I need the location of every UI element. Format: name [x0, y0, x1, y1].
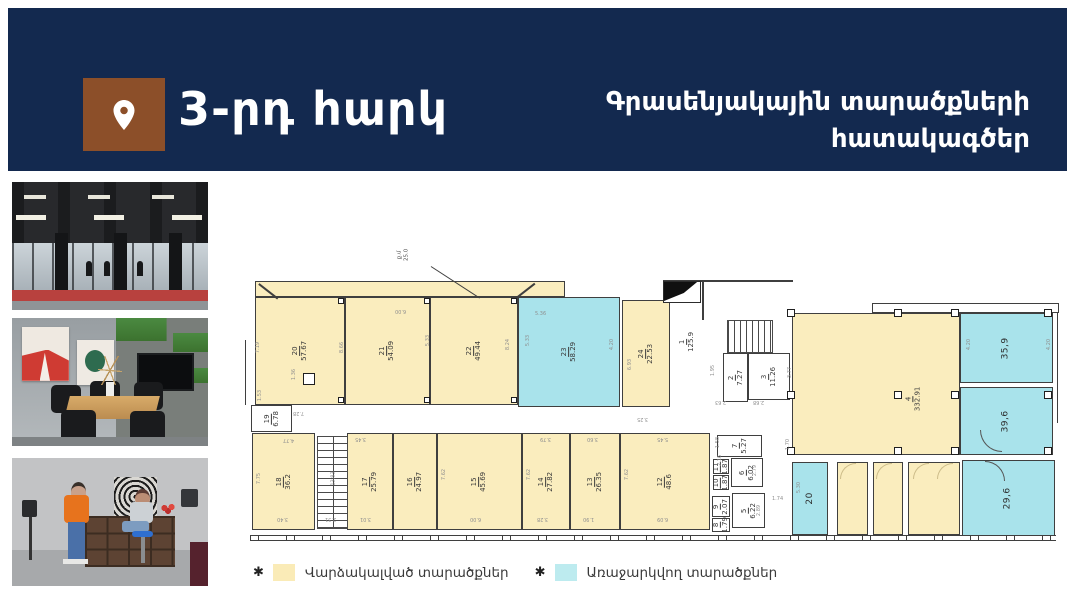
column-mark	[424, 397, 430, 403]
room-21: 2154.09	[345, 297, 430, 405]
shaft-wedge	[663, 281, 701, 303]
dimension-label: 1.90	[583, 516, 594, 521]
hall-column	[169, 233, 182, 292]
dimension-label: 4.20	[967, 339, 972, 350]
hall-column	[114, 233, 127, 292]
room-6: 66.02	[731, 458, 763, 487]
wall	[702, 280, 704, 320]
vase-branches	[98, 356, 122, 384]
room-3: 311.26	[748, 353, 790, 400]
room-29,6: 29,6	[962, 460, 1055, 537]
room-8: 81.79	[712, 518, 730, 532]
leased-swatch	[273, 564, 295, 581]
callout-unit: ք.մ	[396, 249, 403, 261]
standing-person	[64, 495, 89, 523]
dimension-label: 6.09	[657, 516, 668, 521]
legend: ✱ Վարձակալված տարածքներ ✱ Առաջարկվող տար…	[253, 564, 803, 581]
dimension-label: 3.45	[355, 436, 366, 441]
dimension-label: 13.83	[332, 471, 337, 485]
column-mark	[338, 397, 344, 403]
column-mark	[787, 309, 795, 317]
dimension-label: 7.28	[293, 410, 304, 415]
dimension-label: 3.01	[360, 516, 371, 521]
wall	[1057, 303, 1058, 423]
room-24: 2422.53	[622, 300, 670, 407]
callout-value: 25.0	[403, 249, 410, 261]
hall-lights	[24, 195, 197, 199]
legend-item-leased: ✱ Վարձակալված տարածքներ	[253, 564, 509, 581]
standing-person-legs	[68, 522, 86, 562]
room-13: 1326.35	[570, 433, 620, 530]
floorplan-canvas: 2057.672154.092249.442358.292422.531125.…	[245, 250, 1061, 550]
offered-swatch	[555, 564, 577, 581]
column-mark	[894, 447, 902, 455]
photo-meeting-room	[12, 318, 208, 446]
art-canvas	[22, 327, 69, 381]
hall-red-carpet	[12, 290, 208, 302]
room-22: 2249.44	[430, 297, 518, 405]
room-2: 27.27	[723, 353, 748, 402]
curtain	[190, 542, 208, 586]
hall-lights	[16, 215, 204, 220]
room-7: 75.27	[717, 435, 762, 457]
room-4: 4332.91	[792, 313, 960, 455]
room-20: 20	[792, 462, 828, 535]
hall-column	[55, 233, 68, 292]
wall	[250, 535, 1056, 541]
sqm-callout: ք.մ 25.0	[396, 249, 410, 261]
column-mark	[1044, 391, 1052, 399]
dimension-label: 2.31	[325, 516, 336, 521]
stool-pole	[141, 537, 145, 563]
dimension-label: 5.45	[657, 436, 668, 441]
room-39,6: 39,6	[960, 387, 1053, 455]
dimension-label: 1.70	[786, 439, 791, 450]
location-pin-icon	[106, 97, 142, 133]
dimension-label: 1.53	[258, 390, 263, 401]
page-subtitle: Գրասենյակային տարածքների հատակագծեր	[606, 84, 1030, 158]
speaker	[22, 500, 38, 517]
column-mark	[338, 298, 344, 304]
dimension-label: 4.20	[1047, 339, 1052, 350]
room-10: 101.87	[713, 475, 729, 490]
column-mark	[511, 298, 517, 304]
column-mark	[1044, 447, 1052, 455]
dimension-label: 1.36	[292, 369, 297, 380]
legend-label-leased: Վարձակալված տարածքներ	[305, 565, 509, 581]
page-title: 3-րդ հարկ	[178, 82, 448, 136]
dimension-label: 7.19	[256, 342, 261, 353]
dimension-label: 1.95	[711, 365, 716, 376]
dimension-label: 1.58	[716, 437, 721, 448]
room-35,9: 35,9	[960, 313, 1053, 383]
photo-event-hall	[12, 182, 208, 310]
legend-label-offered: Առաջարկվող տարածքներ	[587, 565, 778, 581]
location-badge	[83, 78, 165, 151]
meeting-floor	[12, 437, 208, 446]
dimension-label: 3.28	[537, 516, 548, 521]
dimension-label: 3.77	[788, 367, 793, 378]
dimension-label: 8.66	[340, 342, 345, 353]
dimension-label: 7.62	[625, 469, 630, 480]
room-1: 1125.9	[675, 320, 699, 364]
dimension-label: 7.62	[442, 469, 447, 480]
speaker	[181, 489, 199, 507]
floorplan: 2057.672154.092249.442358.292422.531125.…	[245, 250, 1061, 550]
dimension-label: 3.79	[540, 436, 551, 441]
dimension-label: 4.77	[283, 437, 294, 442]
dimension-label: 2.68	[753, 399, 764, 404]
dimension-label: 7.75	[257, 473, 262, 484]
vase	[106, 382, 114, 396]
flowers	[159, 504, 177, 514]
dimension-label: 5.33	[526, 335, 531, 346]
dimension-label: 2.63	[715, 399, 726, 404]
person-silhouette	[137, 261, 143, 276]
speaker-stand	[29, 517, 32, 561]
person-silhouette	[86, 261, 92, 276]
column-mark	[1044, 309, 1052, 317]
dimension-label: 6.93	[628, 359, 633, 370]
dimension-label: 5.30	[797, 482, 802, 493]
column-mark	[511, 397, 517, 403]
column-mark	[951, 309, 959, 317]
dimension-label: 2.16	[718, 455, 723, 466]
dimension-label: 2.79	[753, 465, 758, 476]
wall	[245, 340, 246, 405]
dimension-label: 2.89	[757, 505, 762, 516]
asterisk-icon: ✱	[535, 565, 546, 580]
standing-person-shoes	[63, 559, 88, 564]
column-mark	[424, 298, 430, 304]
column-mark	[894, 309, 902, 317]
dimension-label: 1.74	[772, 497, 783, 502]
dimension-label: 5.33	[426, 335, 431, 346]
dimension-label: 8.24	[506, 339, 511, 350]
room-19: 196.78	[251, 405, 292, 432]
dimension-label: 5.36	[535, 312, 546, 317]
dimension-label: 3.60	[587, 436, 598, 441]
dimension-label: 4.20	[610, 339, 615, 350]
dimension-label: 7.62	[527, 469, 532, 480]
column-mark	[894, 391, 902, 399]
staircase	[727, 320, 773, 353]
header-band: 3-րդ հարկ Գրասենյակային տարածքների հատակ…	[8, 8, 1067, 171]
dimension-label: 6.00	[470, 516, 481, 521]
column-mark	[787, 391, 795, 399]
room-23: 2358.29	[518, 297, 620, 407]
subtitle-line-2: հատակագծեր	[606, 121, 1030, 158]
legend-item-offered: ✱ Առաջարկվող տարածքներ	[535, 564, 778, 581]
dimension-label: 6.00	[395, 308, 406, 313]
room-16: 1624.97	[393, 433, 437, 530]
dimension-label: 3.40	[277, 516, 288, 521]
photo-workspace	[12, 458, 208, 586]
column-mark	[951, 391, 959, 399]
room-20: 2057.67	[255, 297, 345, 405]
column-mark	[951, 447, 959, 455]
dimension-label: 3.25	[637, 416, 648, 421]
column-mark	[303, 373, 315, 385]
asterisk-icon: ✱	[253, 565, 264, 580]
subtitle-line-1: Գրասենյակային տարածքների	[606, 84, 1030, 121]
room-9: 92.07	[712, 496, 730, 517]
person-silhouette	[104, 261, 110, 276]
